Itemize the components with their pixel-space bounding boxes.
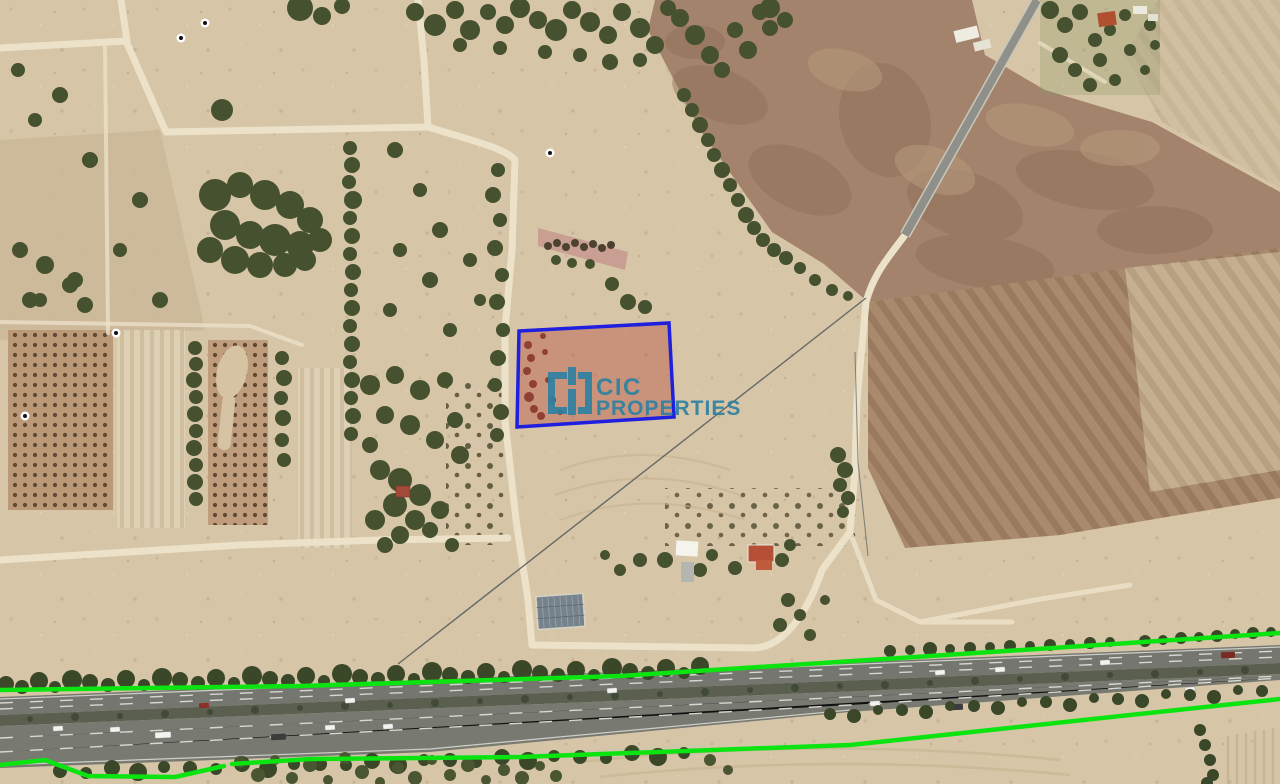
greenhouse	[536, 593, 585, 629]
satellite-photo: CIC PROPERTIES	[0, 0, 1280, 784]
satellite-property-view: CIC PROPERTIES	[0, 0, 1280, 784]
red-roof-shed	[396, 486, 410, 497]
cic-brackets-logo-icon	[548, 367, 592, 415]
watermark-brand-line2: PROPERTIES	[596, 397, 741, 420]
red-roof-house	[1097, 11, 1117, 27]
